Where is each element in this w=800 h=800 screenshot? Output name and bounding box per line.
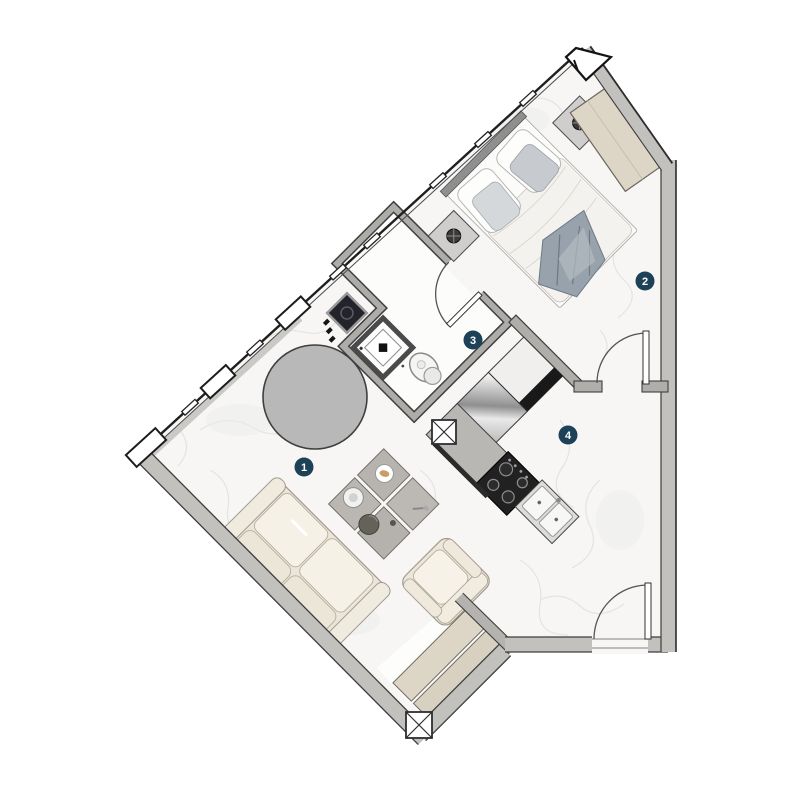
- room-badge-3-label: 3: [470, 335, 476, 347]
- entrance-opening: [592, 635, 648, 654]
- bedroom-door-leaf: [643, 331, 649, 384]
- room-badge-3: 3: [464, 331, 483, 350]
- entrance-door-leaf: [645, 583, 651, 639]
- right-wall: [661, 160, 676, 652]
- room-badge-2-label: 2: [642, 276, 648, 288]
- shaft-marker-kitchen: [432, 420, 456, 444]
- shaft-marker-vertex: [406, 712, 432, 738]
- room-badge-2: 2: [636, 272, 655, 291]
- room-badge-4: 4: [559, 426, 578, 445]
- floor-plan-canvas: 1 2 3 4: [0, 0, 800, 800]
- floor-plan: 1 2 3 4: [0, 0, 800, 800]
- round-table: [263, 345, 367, 449]
- room-badge-1-label: 1: [301, 462, 307, 474]
- room-badge-4-label: 4: [565, 430, 572, 442]
- room-badge-1: 1: [295, 458, 314, 477]
